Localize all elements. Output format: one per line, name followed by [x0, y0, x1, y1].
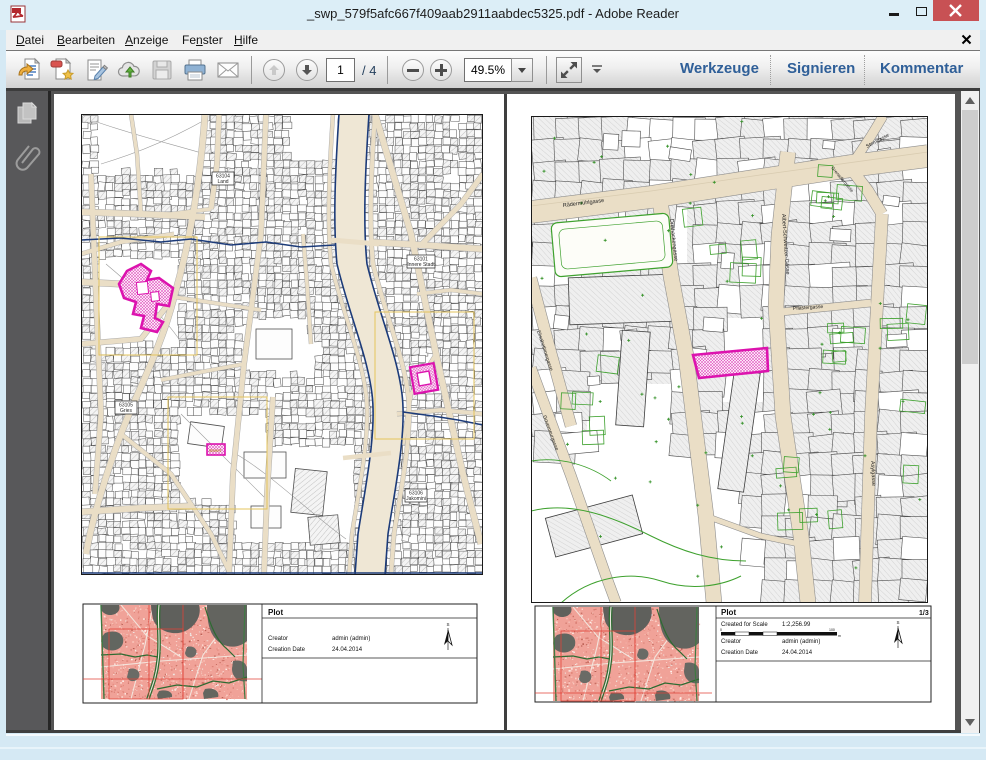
- svg-text:Jakomini: Jakomini: [406, 496, 426, 502]
- svg-text:admin (admin): admin (admin): [332, 636, 370, 642]
- svg-text:admin (admin): admin (admin): [782, 639, 820, 645]
- svg-text:Plot: Plot: [268, 608, 283, 617]
- svg-text:m: m: [838, 634, 841, 638]
- svg-text:Plot: Plot: [721, 608, 736, 617]
- svg-text:Created for Scale: Created for Scale: [721, 622, 768, 628]
- svg-text:Land: Land: [217, 179, 228, 185]
- svg-text:S: S: [446, 622, 449, 627]
- svg-text:1:2,256.99: 1:2,256.99: [782, 622, 811, 628]
- svg-text:Creator: Creator: [268, 636, 288, 642]
- svg-text:24.04.2014: 24.04.2014: [782, 650, 813, 656]
- svg-text:24.04.2014: 24.04.2014: [332, 647, 363, 653]
- svg-text:Creation Date: Creation Date: [268, 647, 306, 653]
- svg-text:1/3: 1/3: [919, 610, 929, 617]
- svg-text:steiert: steiert: [209, 448, 222, 453]
- svg-text:100: 100: [829, 628, 835, 632]
- svg-text:Creator: Creator: [721, 639, 741, 645]
- svg-text:S: S: [896, 620, 899, 625]
- svg-text:Creation Date: Creation Date: [721, 650, 759, 656]
- svg-text:Innere Stadt: Innere Stadt: [407, 262, 435, 268]
- svg-text:Gries: Gries: [120, 408, 132, 414]
- svg-text:0: 0: [720, 628, 722, 632]
